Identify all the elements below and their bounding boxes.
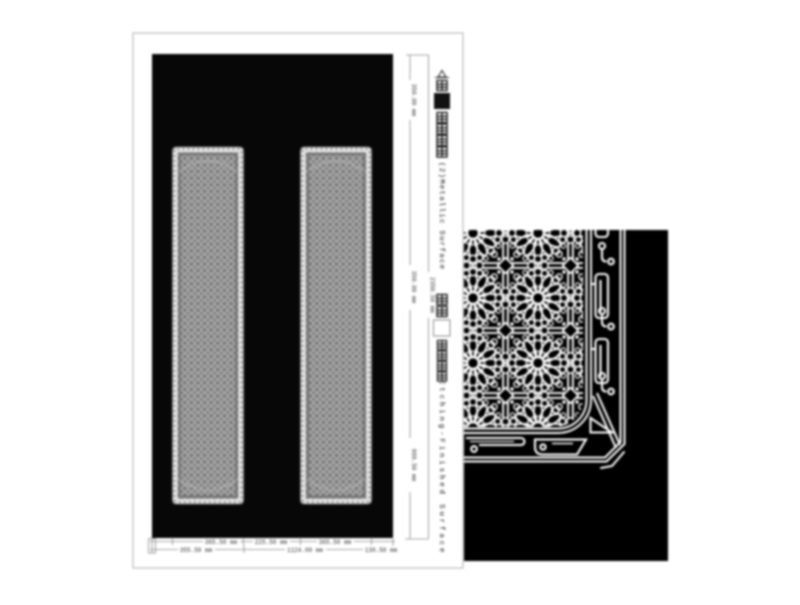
- svg-text:365.50 mm: 365.50 mm: [205, 539, 238, 546]
- svg-text:1124.00 mm: 1124.00 mm: [287, 547, 323, 554]
- svg-text:(2)Metallic Surface: (2)Metallic Surface: [437, 162, 445, 270]
- svg-text:130.50 mm: 130.50 mm: [365, 547, 398, 554]
- svg-text:999.50 mm: 999.50 mm: [410, 449, 417, 482]
- svg-text:365.50 mm: 365.50 mm: [319, 539, 352, 546]
- svg-text:355.50 mm: 355.50 mm: [180, 547, 213, 554]
- svg-text:350.00 mm: 350.00 mm: [410, 84, 417, 117]
- svg-text:2350.50 mm: 2350.50 mm: [429, 277, 436, 313]
- svg-text:Etching-Finished Surface: Etching-Finished Surface: [437, 380, 445, 555]
- svg-text:225.50 mm: 225.50 mm: [255, 539, 288, 546]
- svg-text:350.00 mm: 350.00 mm: [410, 271, 417, 304]
